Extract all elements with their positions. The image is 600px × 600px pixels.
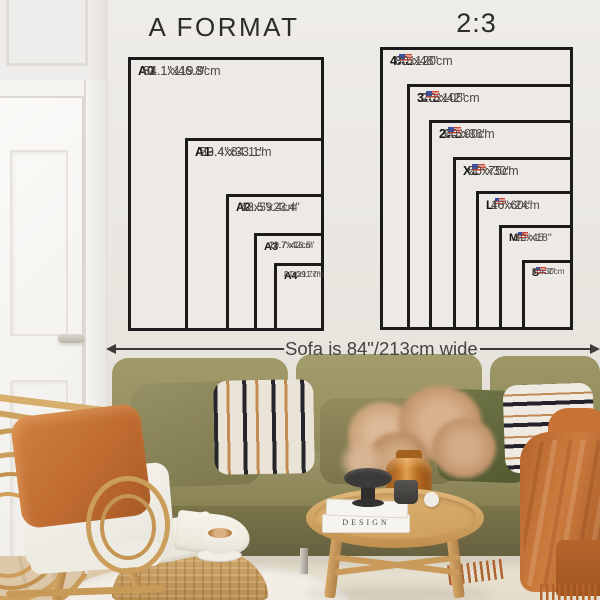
ratio-title: 2:3: [380, 8, 573, 39]
size-cm: 60x90cm: [444, 127, 495, 142]
size-cm: 20x30cm: [532, 267, 564, 277]
black-pedestal-bowl: [344, 468, 392, 488]
throw-fringe: [540, 584, 600, 600]
dimension-line: [480, 348, 592, 350]
size-guide-scene: A FORMAT 2:3 A0 31.1"x46.8" 84.1x119.9cm…: [0, 0, 600, 600]
rattan-armrest-arc: [100, 494, 156, 560]
size-cm: 80x120cm: [395, 54, 453, 69]
a-format-title: A FORMAT: [118, 12, 330, 43]
wall-panel-molding: [6, 0, 88, 66]
pedestal-bowl-base: [352, 499, 384, 507]
size-cm: 21x29.7cm: [284, 270, 323, 280]
dried-flowers: [432, 418, 496, 478]
black-cup: [394, 480, 418, 504]
latte-surface: [208, 528, 232, 538]
decor-ball: [424, 492, 439, 507]
book-spine-label: DESIGN: [326, 518, 406, 527]
size-box-s: S 8"x12" 20x30cm: [522, 260, 573, 330]
door-panel: [10, 150, 68, 336]
dimension-line: [114, 348, 284, 350]
size-cm: 84.1x119.9cm: [143, 64, 221, 79]
size-cm: 70x105cm: [422, 91, 480, 106]
sofa-leg: [300, 548, 308, 574]
right-arrowhead: [590, 344, 600, 354]
size-cm: 40x60cm: [491, 198, 540, 213]
size-cm: 50x75cm: [468, 164, 519, 179]
size-cm: 30x45: [514, 232, 544, 246]
size-cm: 59.4x84.1cm: [200, 145, 272, 160]
size-cm: 29.7x42cm: [269, 240, 313, 252]
sofa-width-note: Sofa is 84"/213cm wide: [285, 338, 475, 360]
size-box-a4: A4 8.3"x11.7" 21x29.7cm: [274, 263, 324, 331]
striped-pillow: [213, 379, 315, 475]
size-cm: 42x59.4cm: [241, 201, 297, 215]
door-handle: [58, 334, 84, 343]
